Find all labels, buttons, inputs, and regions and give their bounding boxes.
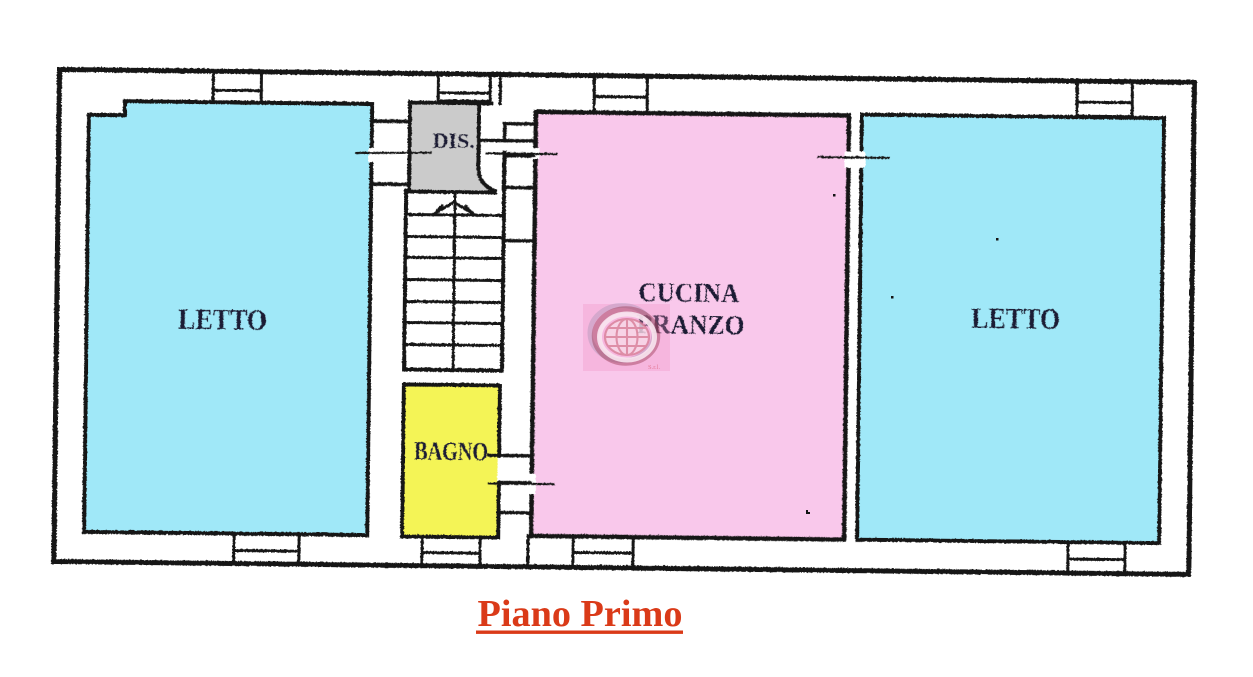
svg-text:BAGNO: BAGNO [413, 436, 487, 466]
svg-text:DIS.: DIS. [432, 128, 474, 152]
svg-text:LETTO: LETTO [177, 302, 266, 336]
svg-text:CUCINA: CUCINA [638, 277, 740, 308]
svg-text:Piano Primo: Piano Primo [478, 593, 683, 635]
svg-text:S.r.l.: S.r.l. [648, 364, 660, 371]
svg-text:LETTO: LETTO [971, 301, 1060, 335]
